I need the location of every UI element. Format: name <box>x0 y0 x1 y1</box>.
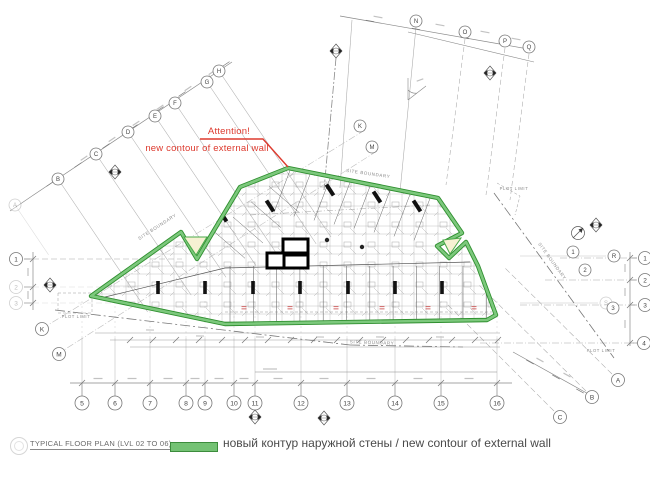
svg-text:PLOT LIMIT: PLOT LIMIT <box>62 314 91 319</box>
svg-text:O: O <box>463 30 468 36</box>
attention-annotation-line1: Attention! <box>208 126 250 137</box>
section-marker-icon <box>249 410 261 424</box>
svg-text:PLOT LIMIT: PLOT LIMIT <box>500 186 529 191</box>
svg-text:1: 1 <box>14 256 18 263</box>
svg-text:2: 2 <box>643 277 647 284</box>
svg-text:12: 12 <box>297 400 305 407</box>
section-marker-icon <box>330 44 342 58</box>
drawing-sheet: SITE BOUNDARYSITE BOUNDARYSITE BOUNDARYS… <box>0 0 650 482</box>
svg-text:C: C <box>558 414 563 421</box>
north-arrow-icon <box>572 227 585 240</box>
svg-text:D: D <box>126 130 131 136</box>
section-marker-icon <box>44 278 56 292</box>
svg-text:G: G <box>205 80 210 86</box>
svg-text:5: 5 <box>80 400 84 407</box>
svg-text:14: 14 <box>391 400 399 407</box>
svg-text:K: K <box>40 326 45 333</box>
svg-text:Q: Q <box>527 45 532 51</box>
section-marker-icon <box>109 165 121 179</box>
svg-text:3: 3 <box>643 302 647 309</box>
svg-text:A: A <box>616 377 621 384</box>
legend-green-swatch <box>170 442 218 452</box>
svg-text:K: K <box>358 124 362 130</box>
svg-text:13: 13 <box>343 400 351 407</box>
legend-label: новый контур наружной стены / new contou… <box>223 436 551 450</box>
svg-text:P: P <box>503 39 507 45</box>
svg-text:SITE BOUNDARY: SITE BOUNDARY <box>537 242 567 281</box>
svg-text:3: 3 <box>14 300 18 307</box>
svg-text:E: E <box>153 114 157 120</box>
section-marker-icon <box>484 66 496 80</box>
svg-text:A: A <box>13 203 17 209</box>
svg-text:N: N <box>414 19 418 25</box>
svg-text:15: 15 <box>437 400 445 407</box>
svg-text:M: M <box>370 145 375 151</box>
section-marker-icon <box>318 411 330 425</box>
svg-text:1: 1 <box>643 255 647 262</box>
floor-plan-drawing: SITE BOUNDARYSITE BOUNDARYSITE BOUNDARYS… <box>0 0 650 482</box>
svg-text:B: B <box>590 394 594 401</box>
svg-text:7: 7 <box>148 400 152 407</box>
svg-text:6: 6 <box>113 400 117 407</box>
svg-text:B: B <box>56 177 60 183</box>
svg-text:R: R <box>612 254 617 260</box>
plan-title: TYPICAL FLOOR PLAN (LVL 02 TO 06) <box>30 439 176 450</box>
title-block: TYPICAL FLOOR PLAN (LVL 02 TO 06) новый … <box>0 432 650 458</box>
svg-text:11: 11 <box>251 400 258 407</box>
svg-text:16: 16 <box>493 400 501 407</box>
attention-annotation-line2: new contour of external wall <box>145 143 268 154</box>
svg-text:M: M <box>56 351 61 358</box>
svg-text:10: 10 <box>230 400 238 407</box>
svg-text:PLOT LIMIT: PLOT LIMIT <box>587 348 616 353</box>
svg-text:9: 9 <box>203 400 207 407</box>
drawing-number-bubble <box>10 437 28 455</box>
section-marker-icon <box>590 218 602 232</box>
svg-text:F: F <box>173 101 177 107</box>
svg-text:2: 2 <box>14 284 18 291</box>
svg-text:4: 4 <box>642 340 646 347</box>
svg-text:C: C <box>94 152 99 158</box>
svg-text:8: 8 <box>184 400 188 407</box>
svg-text:SITE BOUNDARY: SITE BOUNDARY <box>346 168 391 179</box>
svg-text:H: H <box>217 69 221 75</box>
